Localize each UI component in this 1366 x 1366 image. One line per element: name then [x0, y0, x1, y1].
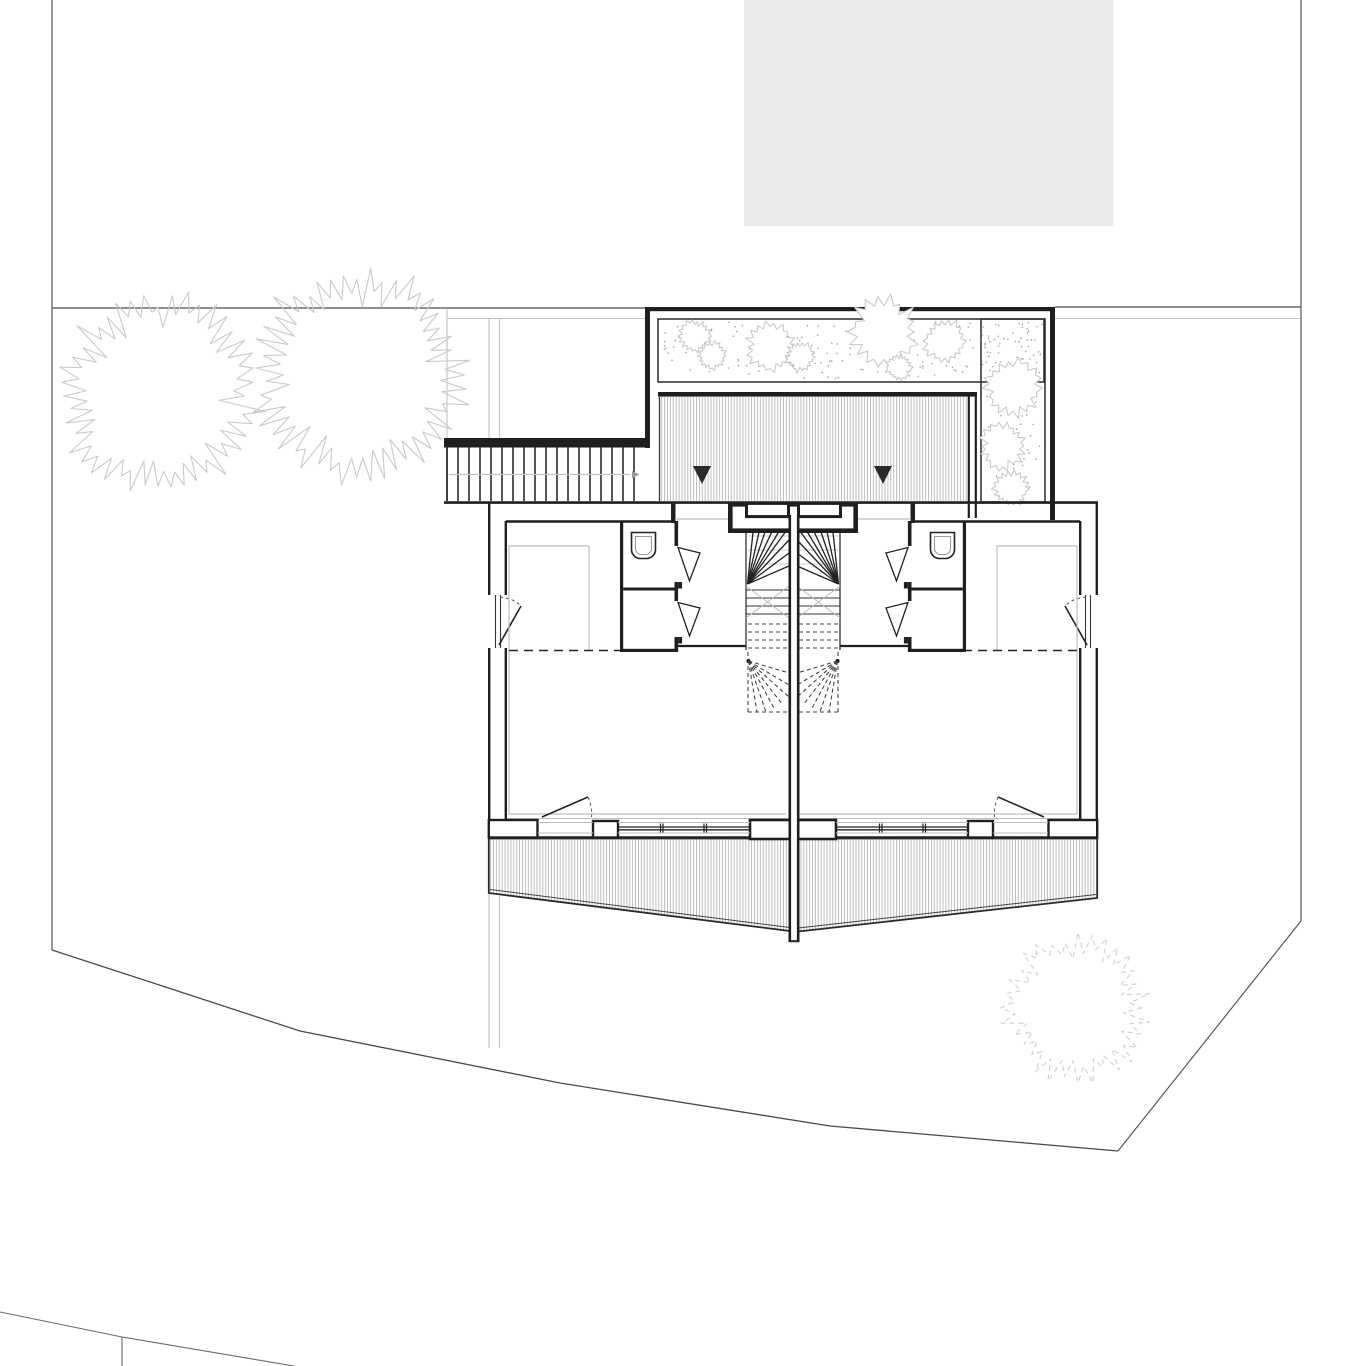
shrub-5	[847, 294, 918, 369]
bath-wall-left	[963, 521, 966, 652]
exterior-stair-direction-arrow-icon	[632, 471, 640, 478]
side-door-swing-arc	[500, 597, 521, 606]
terrace-wall-top	[658, 392, 977, 397]
deck-right-hatch	[797, 838, 1099, 933]
bath-door-stub-1	[678, 582, 682, 589]
exterior-stair-landing-wall	[444, 438, 647, 448]
facade-pier-corner	[1049, 820, 1098, 838]
tree-outline-3	[1001, 932, 1150, 1083]
bath-wall-right-a	[675, 521, 679, 546]
bath-door-leaf-1	[678, 548, 700, 582]
tree-outline-1	[60, 292, 266, 491]
neighbor-building	[744, 0, 1113, 226]
side-door-leaf	[1065, 606, 1087, 645]
bath-door-stub-2	[678, 637, 682, 644]
top-wall-end-cap	[671, 503, 676, 523]
facade-pier-corner	[489, 820, 538, 838]
tree-outline-2	[254, 268, 470, 485]
deck-left-hatch	[488, 838, 791, 933]
shrub-8	[982, 358, 1042, 419]
bath-door-leaf-2	[886, 603, 908, 637]
terrace-enclosure-wall-top	[645, 307, 1055, 311]
unit-left	[489, 503, 790, 839]
facade-pier-center	[796, 820, 836, 839]
bath-door-stub-1	[904, 582, 908, 589]
terrace-enclosure-wall-right	[1050, 307, 1055, 520]
bath-wall-right-b	[908, 582, 912, 601]
shrub-4	[785, 343, 816, 374]
floor-plan-page	[0, 0, 1366, 1366]
top-wall-end-cap	[911, 503, 916, 523]
party-wall-core	[791, 517, 797, 941]
site-boundary-bottom	[52, 950, 1118, 1151]
terrace-enclosure-wall-left	[645, 307, 650, 448]
floor-plan-canvas	[0, 0, 1366, 1366]
bath-wall-bottom	[620, 649, 678, 652]
shrub-10	[991, 470, 1029, 505]
terrace-hatch	[660, 397, 967, 501]
bath-divider-wall	[623, 588, 674, 591]
bath-divider-wall	[912, 588, 963, 591]
facade-pier-mid	[593, 821, 618, 838]
unit-right	[796, 503, 1097, 839]
stair-lower-fan	[749, 661, 790, 712]
side-door-swing-arc	[1065, 597, 1086, 606]
entry-threshold-left	[747, 503, 789, 516]
bath-door-leaf-2	[678, 603, 700, 637]
bath-door-leaf-1	[886, 548, 908, 582]
facade-pier-mid	[968, 821, 993, 838]
bath-wall-right-a	[908, 521, 912, 546]
side-door-leaf	[499, 606, 521, 645]
shrub-9	[979, 422, 1025, 471]
bath-wall-left	[620, 521, 623, 652]
bath-wall-right-b	[675, 582, 679, 601]
stair-lower-fan	[797, 661, 838, 712]
entry-threshold-right	[799, 503, 841, 516]
site-boundary-diagonal	[1118, 921, 1301, 1151]
bath-wall-bottom	[908, 649, 966, 652]
bath-door-stub-2	[904, 637, 908, 644]
site-corner-line	[0, 1312, 294, 1366]
facade-pier-center	[750, 820, 790, 839]
